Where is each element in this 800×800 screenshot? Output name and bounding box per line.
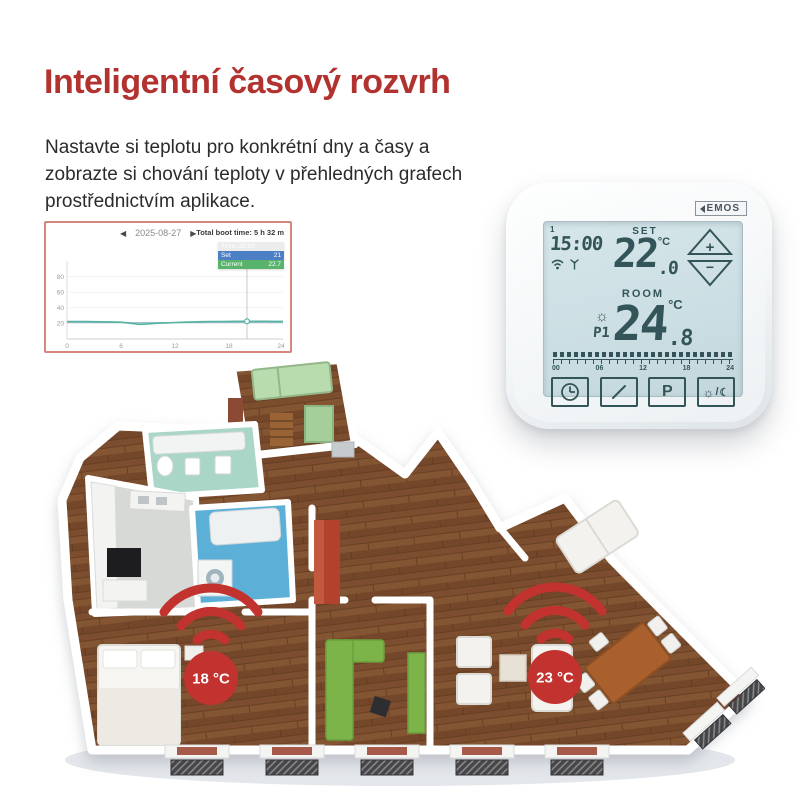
sensor-bedroom-label: 18 °C: [192, 671, 230, 688]
fridge: [107, 548, 141, 577]
chart-plot-svg: 80 60 40 20 0 6 12 18 24: [51, 257, 287, 357]
x-tick-24: 24: [277, 343, 285, 350]
set-decimal: .0: [657, 261, 678, 277]
ladder: [270, 413, 293, 446]
y-tick-40: 40: [57, 305, 65, 312]
y-tick-20: 20: [57, 321, 65, 328]
tooltip-current-label: Current: [221, 261, 243, 268]
lcd-antenna-icon: [570, 259, 579, 270]
emos-arrow-icon: [700, 205, 705, 213]
brand-name: EMOS: [707, 203, 740, 214]
x-tick-6: 6: [119, 343, 123, 350]
coffee-table: [500, 655, 526, 681]
floor-plan: 18 °C 23 °C: [35, 358, 765, 792]
decrease-button[interactable]: −: [687, 259, 733, 287]
wifi-signal-icon: [600, 108, 704, 186]
sensor-living-label: 23 °C: [536, 670, 574, 687]
chart-date-nav: ◀ 2025-08-27 ▶: [120, 228, 196, 238]
set-unit: °C: [658, 237, 670, 247]
chart-crosshair-marker: [245, 319, 250, 324]
app-chart-card: ◀ 2025-08-27 ▶ Total boot time: 5 h 32 m…: [44, 221, 292, 353]
armchair: [457, 637, 491, 667]
office-cabinet: [408, 653, 425, 733]
green-panel: [305, 406, 333, 442]
x-tick-18: 18: [225, 343, 233, 350]
tooltip-set-row: Set 21: [218, 251, 284, 260]
tooltip-time: Time: 20:00: [218, 242, 284, 251]
x-tick-0: 0: [65, 343, 69, 350]
minus-sign: −: [706, 259, 714, 275]
chart-date: 2025-08-27: [135, 228, 181, 238]
tooltip-set-value: 21: [274, 252, 281, 259]
chart-tooltip: Time: 20:00 Set 21 Current 22.7: [218, 242, 284, 269]
prev-day-button[interactable]: ◀: [120, 229, 126, 238]
room-unit: °C: [668, 300, 683, 310]
intro-text: Nastavte si teplotu pro konkrétní dny a …: [45, 135, 493, 216]
armchair: [457, 674, 491, 704]
page: { "header": { "title": "Inteligentní čas…: [0, 0, 800, 800]
tooltip-set-label: Set: [221, 252, 231, 259]
boot-time-label: Total boot time: 5 h 32 m: [196, 228, 284, 237]
page-title: Inteligentní časový rozvrh: [44, 63, 604, 102]
hall-cabinet: [314, 520, 340, 604]
program-indicator: P1: [593, 326, 611, 340]
y-tick-60: 60: [57, 289, 65, 296]
schedule-blocks: [553, 352, 733, 357]
room-decimal: .8: [667, 329, 693, 348]
clock-display: 15:00: [549, 234, 606, 254]
increase-button[interactable]: +: [687, 228, 733, 256]
heating-sun-icon: ☼: [595, 309, 609, 324]
tooltip-current-row: Current 22.7: [218, 260, 284, 269]
brand-logo: EMOS: [695, 201, 747, 216]
plus-sign: +: [706, 239, 715, 256]
tooltip-current-value: 22.7: [268, 261, 281, 268]
set-temperature: 22: [611, 237, 658, 271]
y-tick-80: 80: [57, 274, 65, 281]
gray-cabinet: [332, 442, 354, 457]
lcd-wifi-icon: [550, 258, 565, 270]
room-temperature: 24: [612, 304, 669, 344]
x-tick-12: 12: [171, 343, 179, 350]
